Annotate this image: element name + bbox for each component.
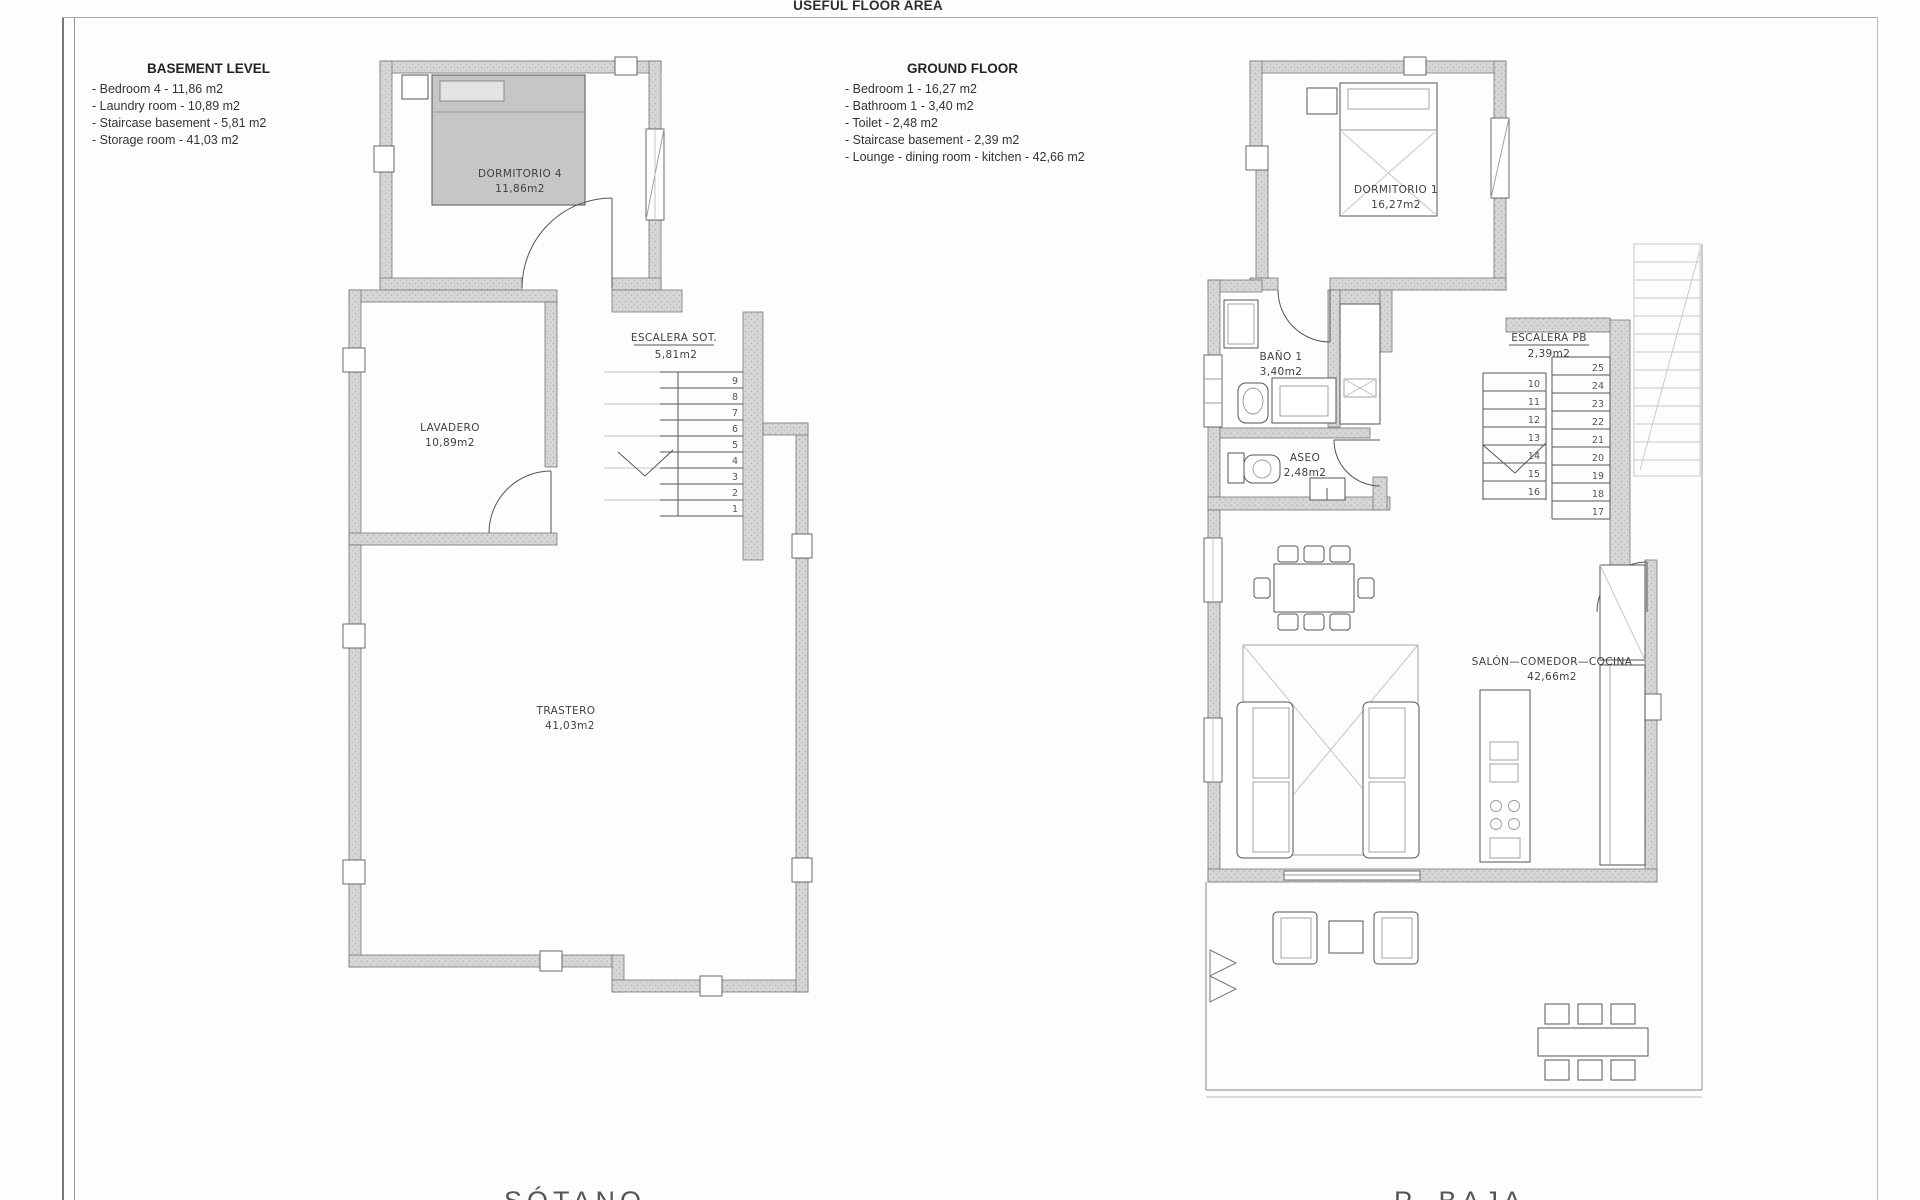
room-label-trastero: TRASTERO [536,705,596,717]
dining-table [1274,564,1354,612]
room-label-dormitorio1: DORMITORIO 1 [1354,184,1438,196]
outdoor-armchair [1374,912,1418,964]
room-area-bano1: 3,40m2 [1260,366,1303,378]
stair-step-number: 25 [1592,363,1604,374]
room-area-trastero: 41,03m2 [545,720,595,732]
stair-direction-arrow [618,450,673,476]
room-label-aseo: ASEO [1290,452,1320,464]
stair-step-number: 19 [1592,471,1604,482]
shower [1224,300,1258,348]
stair-step-number: 21 [1592,435,1604,446]
room-area-dormitorio4: 11,86m2 [495,183,545,195]
stair-step-number: 23 [1592,399,1604,410]
stair-step-number: 24 [1592,381,1604,392]
stair-step-number: 3 [732,472,738,483]
stair-step-number: 4 [732,456,738,467]
drain-arrow [1210,950,1236,976]
stair-step-number: 6 [732,424,738,435]
room-label-dormitorio4: DORMITORIO 4 [478,168,562,180]
stair-step-number: 2 [732,488,738,499]
sofa [1363,702,1419,858]
stair-step-number: 12 [1528,415,1540,426]
exterior-stairs [1634,244,1700,476]
stair-step-number: 10 [1528,379,1540,390]
living-area [1237,645,1419,858]
stair-step-number: 7 [732,408,738,419]
stair-step-number: 9 [732,376,738,387]
bed-double [1307,83,1437,216]
stair-step-number: 18 [1592,489,1604,500]
side-table [1329,921,1363,953]
bed-double [402,75,585,205]
stair-step-number: 17 [1592,507,1604,518]
stair-step-number: 16 [1528,487,1540,498]
stair-step-number: 5 [732,440,738,451]
stair-step-number: 14 [1528,451,1540,462]
stair-step-number: 22 [1592,417,1604,428]
stair-step-number: 20 [1592,453,1604,464]
stair-step-number: 13 [1528,433,1540,444]
room-area-aseo: 2,48m2 [1284,467,1327,479]
kitchen-island [1480,690,1530,862]
stair-step-number: 8 [732,392,738,403]
dining-table-set [1254,546,1374,630]
room-label-salon: SALÓN—COMEDOR—COCINA [1472,655,1633,668]
room-area-salon: 42,66m2 [1527,671,1577,683]
kitchen [1480,565,1645,865]
nightstand [402,75,428,99]
room-area-escalera-sot: 5,81m2 [655,349,698,361]
room-area-lavadero: 10,89m2 [425,437,475,449]
room-label-escalera-sot: ESCALERA SOT. [631,332,717,344]
drain-arrow [1210,976,1236,1002]
floor-plan-drawing: 9 8 7 6 5 4 3 2 1 DORMITORIO 4 11,86m2 E… [0,0,1920,1200]
nightstand [1307,88,1337,114]
toilet [1244,455,1280,483]
room-label-bano1: BAÑO 1 [1260,350,1303,363]
sofa [1237,702,1293,858]
cistern [1228,453,1244,483]
door-arc [1278,290,1330,342]
toilet [1238,383,1268,423]
room-area-escalera-pb: 2,39m2 [1528,348,1571,360]
ground-floor-plan: 10 11 12 13 14 15 16 25 24 23 22 21 20 1… [1204,57,1702,1097]
basement-staircase: 9 8 7 6 5 4 3 2 1 [604,372,743,516]
basement-floor-plan: 9 8 7 6 5 4 3 2 1 DORMITORIO 4 11,86m2 E… [343,57,812,996]
room-label-escalera-pb: ESCALERA PB [1511,332,1587,344]
plan-sheet: USEFUL FLOOR AREA BASEMENT LEVEL - Bedro… [0,0,1920,1200]
stair-step-number: 11 [1528,397,1540,408]
kitchen-counter [1600,665,1645,865]
plan-title-sotano: SÓTANO [480,1186,670,1200]
stair-step-number: 15 [1528,469,1540,480]
plan-title-pbaja: P. BAJA [1360,1186,1560,1200]
terrace-dining-set [1538,1004,1648,1080]
wardrobe [1340,304,1380,424]
room-label-lavadero: LAVADERO [420,422,480,434]
room-area-dormitorio1: 16,27m2 [1371,199,1421,211]
stair-step-number: 1 [732,504,738,515]
outdoor-armchair [1273,912,1317,964]
